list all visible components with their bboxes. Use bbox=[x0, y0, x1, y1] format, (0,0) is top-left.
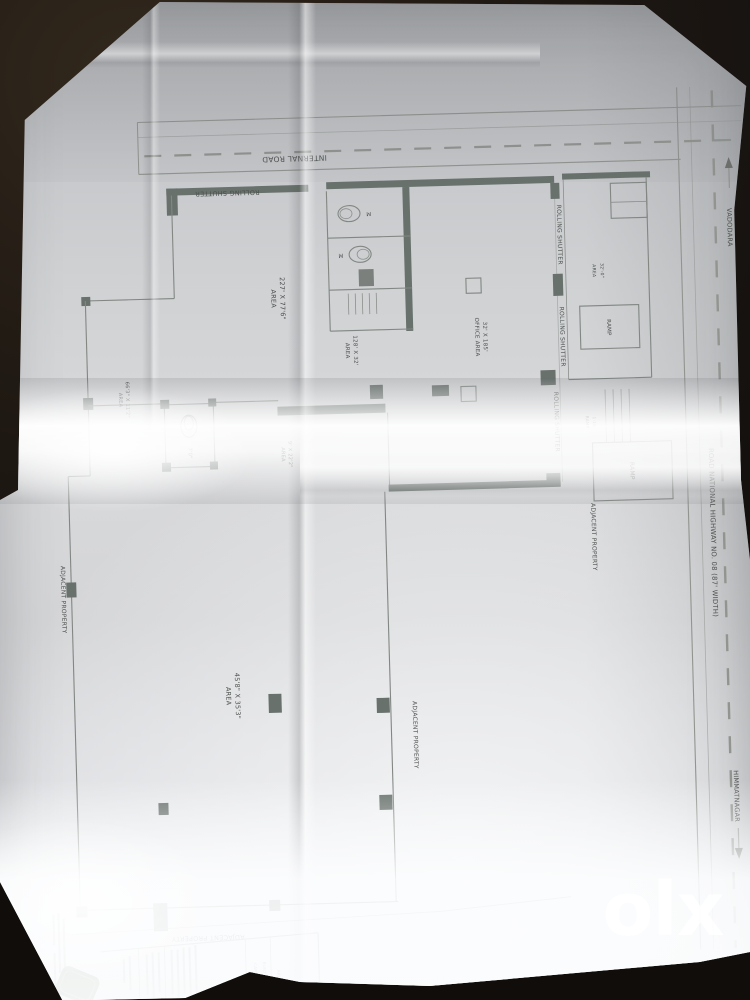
adjacent-property-label: ADJACENT PROPERTY bbox=[589, 503, 598, 571]
right-rooms: AREA 32'-0" RAMP RAMP 1:15 RAMP bbox=[563, 177, 673, 502]
svg-text:128' X 32': 128' X 32' bbox=[351, 335, 358, 365]
svg-text:32' X 185': 32' X 185' bbox=[481, 322, 488, 352]
svg-text:AREA: AREA bbox=[224, 687, 233, 706]
adjacent-property-label: ADJACENT PROPERTY bbox=[411, 701, 420, 769]
ramp-lower: RAMP bbox=[592, 441, 673, 501]
svg-text:RAMP: RAMP bbox=[628, 462, 635, 480]
columns bbox=[367, 278, 484, 404]
svg-text:OFFICE AREA: OFFICE AREA bbox=[473, 318, 480, 357]
ramp-slope-lines bbox=[605, 389, 630, 443]
ramp-upper: RAMP bbox=[580, 305, 640, 350]
wc-label: M bbox=[338, 252, 343, 258]
svg-text:AREA: AREA bbox=[269, 289, 278, 308]
store-area-label: AREA bbox=[591, 264, 597, 278]
svg-text:AREA: AREA bbox=[117, 393, 123, 408]
area-label: AREA bbox=[276, 970, 281, 982]
internal-road: INTERNAL ROAD bbox=[137, 106, 742, 175]
svg-text:HIMMATNAGAR: HIMMATNAGAR bbox=[732, 770, 741, 822]
svg-text:AREA: AREA bbox=[344, 343, 350, 359]
north-compass: N bbox=[212, 982, 243, 1000]
stair-hatch bbox=[348, 293, 377, 315]
photo-of-floor-plan: INTERNAL ROAD ROAD NATIONAL HIGHWAY NO. … bbox=[0, 0, 750, 1000]
internal-road-label: INTERNAL ROAD bbox=[262, 153, 327, 164]
wash-basin bbox=[359, 269, 374, 286]
store-area-dims: 32'-0" bbox=[598, 263, 604, 278]
toilet-block-left: 7'0" bbox=[160, 398, 218, 472]
title-block: CARPET AREA BUILT UP AREA AREA N bbox=[51, 906, 320, 1000]
svg-text:N: N bbox=[225, 993, 231, 1000]
svg-text:AREA: AREA bbox=[279, 447, 285, 462]
floor-plan-drawing: INTERNAL ROAD ROAD NATIONAL HIGHWAY NO. … bbox=[0, 0, 750, 1000]
adjacent-property-label: ADJACENT PROPERTY bbox=[59, 566, 68, 634]
svg-text:66'3" X 11'2": 66'3" X 11'2" bbox=[124, 382, 131, 418]
ramp-slope-ratio: 1:15 bbox=[592, 417, 597, 428]
svg-text:VADODARA: VADODARA bbox=[725, 208, 734, 247]
rolling-shutter-label: ROLLING SHUTTER bbox=[552, 392, 561, 452]
area-labels: AREA 227' X 77'6" AREA 128' X 32' OFFICE… bbox=[114, 271, 498, 722]
wc-fixture: M bbox=[338, 246, 371, 263]
svg-text:RAMP: RAMP bbox=[605, 319, 611, 336]
national-highway-road: ROAD NATIONAL HIGHWAY NO. 08 (87' WIDTH)… bbox=[677, 86, 750, 949]
carpet-area-label: CARPET AREA bbox=[253, 963, 259, 994]
toilet-block-top: M M bbox=[326, 187, 413, 333]
wc-label: M bbox=[366, 210, 371, 216]
adjacent-property-label: ADJACENT PROPERTY bbox=[172, 933, 245, 943]
wc-fixture: M bbox=[338, 205, 371, 222]
svg-text:45'8" X 35'3": 45'8" X 35'3" bbox=[233, 673, 242, 719]
highway-label: ROAD NATIONAL HIGHWAY NO. 08 (87' WIDTH) bbox=[707, 448, 720, 617]
builtup-area-label: BUILT UP AREA bbox=[262, 962, 268, 995]
blueprint-paper: INTERNAL ROAD ROAD NATIONAL HIGHWAY NO. … bbox=[0, 0, 750, 1000]
toilet-dimension: 7'0" bbox=[186, 448, 192, 459]
svg-text:9' X 22'2": 9' X 22'2" bbox=[286, 441, 293, 468]
ramp-slope-label: RAMP bbox=[585, 416, 590, 429]
svg-text:227' X 77'6": 227' X 77'6" bbox=[278, 277, 287, 320]
direction-arrow-vadodara: VADODARA bbox=[724, 157, 736, 247]
